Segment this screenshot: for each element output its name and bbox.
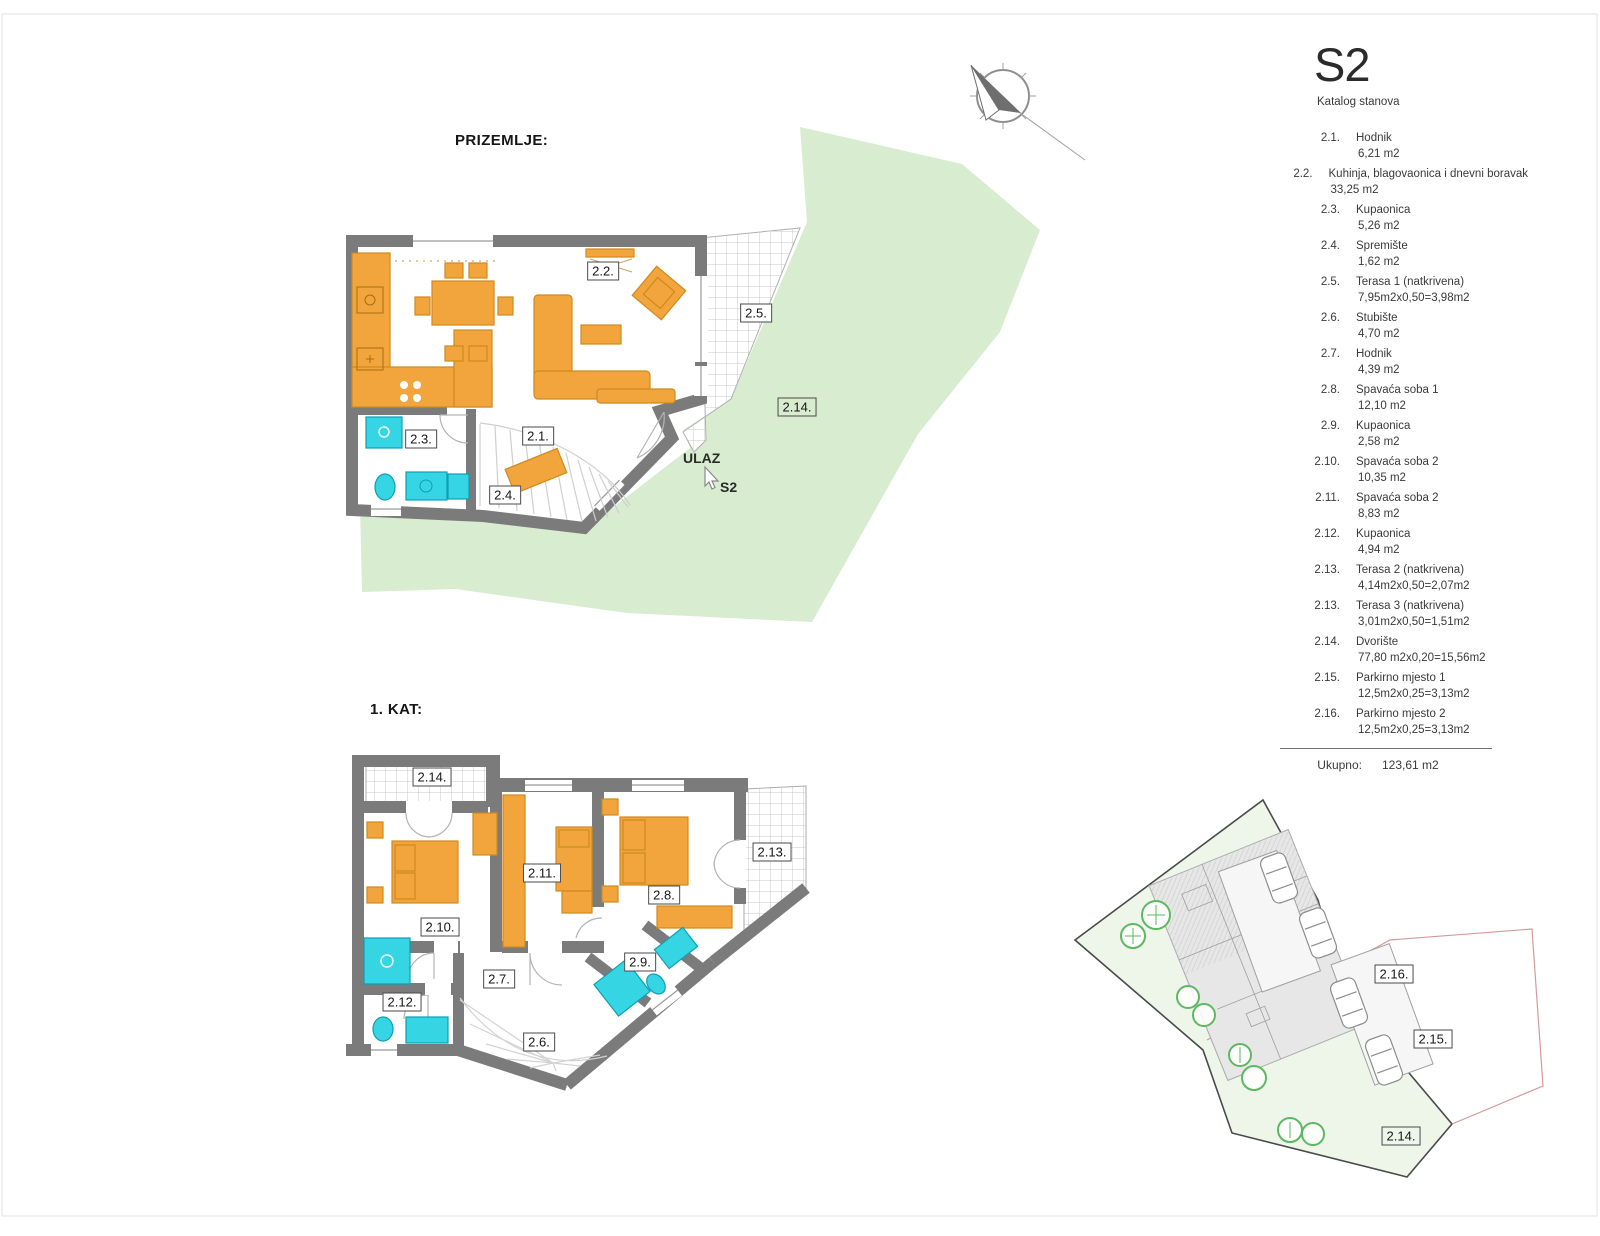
door-gap-2-12 — [425, 983, 451, 995]
legend-item-name: Terasa 1 (natkrivena) — [1356, 274, 1528, 290]
room-label-2-5: 2.5. — [740, 304, 772, 323]
shower — [366, 417, 402, 448]
legend-footer: Ukupno: 123,61 m2 — [1276, 748, 1528, 772]
sofa-ottoman — [597, 389, 675, 403]
wall-213-stub-top — [734, 790, 746, 840]
ground-floor-plan — [352, 127, 1040, 622]
nightstand — [602, 799, 618, 815]
first-floor-title: 1. KAT: — [370, 701, 423, 718]
legend-items: 2.1.Hodnik6,21 m22.2.Kuhinja, blagovaoni… — [1276, 130, 1528, 772]
legend-item-number: 2.13. — [1276, 562, 1356, 594]
legend-item-area: 4,70 m2 — [1356, 326, 1528, 342]
legend-item: 2.10.Spavaća soba 210,35 m2 — [1276, 454, 1528, 486]
legend-item-body: Spavaća soba 112,10 m2 — [1356, 382, 1528, 414]
total-value: 123,61 m2 — [1382, 758, 1439, 772]
legend-item: 2.5.Terasa 1 (natkrivena)7,95m2x0,50=3,9… — [1276, 274, 1528, 306]
north-arrow-icon — [970, 63, 1085, 160]
site-label-2-16: 2.16. — [1375, 965, 1414, 984]
legend-item-area: 12,5m2x0,25=3,13m2 — [1356, 722, 1528, 738]
legend-item: 2.16.Parkirno mjesto 212,5m2x0,25=3,13m2 — [1276, 706, 1528, 738]
pillow — [395, 845, 415, 871]
legend-item-area: 8,83 m2 — [1356, 506, 1528, 522]
legend-item-number: 2.12. — [1276, 526, 1356, 558]
legend-item-area: 4,14m2x0,50=2,07m2 — [1356, 578, 1528, 594]
legend-item: 2.15.Parkirno mjesto 112,5m2x0,25=3,13m2 — [1276, 670, 1528, 702]
legend-item-area: 7,95m2x0,50=3,98m2 — [1356, 290, 1528, 306]
legend-item: 2.4.Spremište1,62 m2 — [1276, 238, 1528, 270]
legend-item-body: Terasa 2 (natkrivena)4,14m2x0,50=2,07m2 — [1356, 562, 1528, 594]
room-label-2-13: 2.13. — [753, 843, 792, 862]
nightstand — [367, 887, 383, 903]
room-label-2-4: 2.4. — [489, 486, 521, 505]
legend-item-number: 2.3. — [1276, 202, 1356, 234]
legend-item: 2.7.Hodnik4,39 m2 — [1276, 346, 1528, 378]
dresser-2-8 — [657, 906, 732, 928]
legend-item-area: 6,21 m2 — [1356, 146, 1528, 162]
legend-item-name: Hodnik — [1356, 130, 1528, 146]
wardrobe-2-10 — [473, 813, 497, 855]
room-label-2-14-ff: 2.14. — [413, 768, 452, 787]
room-label-2-9: 2.9. — [624, 953, 656, 972]
legend-item: 2.13.Terasa 2 (natkrivena)4,14m2x0,50=2,… — [1276, 562, 1528, 594]
legend-item-body: Kupaonica5,26 m2 — [1356, 202, 1528, 234]
legend-separator — [1280, 748, 1492, 749]
chair — [469, 346, 487, 361]
wall-terrace-bottom-l — [364, 801, 406, 813]
chair — [415, 297, 430, 315]
wall-terrace-top — [352, 755, 498, 767]
window-top-1 — [525, 780, 572, 791]
legend-item-area: 1,62 m2 — [1356, 254, 1528, 270]
legend-item-area: 4,39 m2 — [1356, 362, 1528, 378]
legend-item-number: 2.1. — [1276, 130, 1356, 162]
chair — [445, 346, 463, 361]
legend-item-number: 2.13. — [1276, 598, 1356, 630]
legend-item: 2.14.Dvorište77,80 m2x0,20=15,56m2 — [1276, 634, 1528, 666]
room-label-2-12: 2.12. — [383, 993, 422, 1012]
legend-item-area: 3,01m2x0,50=1,51m2 — [1356, 614, 1528, 630]
legend-item-body: Parkirno mjesto 112,5m2x0,25=3,13m2 — [1356, 670, 1528, 702]
legend-item-name: Terasa 3 (natkrivena) — [1356, 598, 1528, 614]
window-bottom — [371, 1044, 397, 1056]
legend-item-name: Kupaonica — [1356, 526, 1528, 542]
legend-item-body: Spavaća soba 28,83 m2 — [1356, 490, 1528, 522]
legend-item-name: Spremište — [1356, 238, 1528, 254]
legend-item-area: 5,26 m2 — [1356, 218, 1528, 234]
legend-item: 2.8.Spavaća soba 112,10 m2 — [1276, 382, 1528, 414]
legend-item-name: Terasa 2 (natkrivena) — [1356, 562, 1528, 578]
legend-item-body: Hodnik4,39 m2 — [1356, 346, 1528, 378]
legend-item-name: Kupaonica — [1356, 418, 1528, 434]
total-label: Ukupno: — [1276, 758, 1372, 772]
legend-item-number: 2.9. — [1276, 418, 1356, 450]
kitchen-peninsula — [454, 330, 492, 407]
legend-item-body: Kupaonica4,94 m2 — [1356, 526, 1528, 558]
window-top — [413, 234, 493, 248]
unit-title: S2 — [1314, 42, 1370, 88]
room-label-2-1: 2.1. — [522, 427, 554, 446]
washbasin — [448, 474, 469, 499]
tree-icon — [1242, 1066, 1266, 1090]
legend-item-number: 2.5. — [1276, 274, 1356, 306]
chair — [498, 297, 513, 315]
room-label-2-8: 2.8. — [648, 886, 680, 905]
legend-item-body: Terasa 3 (natkrivena)3,01m2x0,50=1,51m2 — [1356, 598, 1528, 630]
legend-item-body: Dvorište77,80 m2x0,20=15,56m2 — [1356, 634, 1528, 666]
entrance-unit-label: S2 — [720, 479, 737, 495]
legend-item-name: Spavaća soba 2 — [1356, 454, 1528, 470]
catalog-subtitle: Katalog stanova — [1317, 96, 1399, 108]
pillow — [623, 853, 645, 883]
door-gap-2-11 — [528, 941, 562, 953]
legend-item-name: Dvorište — [1356, 634, 1528, 650]
legend-item: 2.12.Kupaonica4,94 m2 — [1276, 526, 1528, 558]
window-top-2 — [632, 780, 684, 791]
terrace-door — [694, 366, 708, 396]
toilet — [375, 474, 395, 500]
pillow — [559, 830, 589, 847]
legend-item-area: 77,80 m2x0,20=15,56m2 — [1356, 650, 1528, 666]
door-gap-2-10 — [434, 941, 458, 953]
first-floor-plan — [346, 755, 806, 1085]
legend-item-area: 12,10 m2 — [1356, 398, 1528, 414]
legend-item-area: 12,5m2x0,25=3,13m2 — [1356, 686, 1528, 702]
toilet-2-12 — [373, 1017, 393, 1041]
room-label-2-2: 2.2. — [587, 262, 619, 281]
legend-item-area: 4,94 m2 — [1356, 542, 1528, 558]
legend-item-name: Spavaća soba 2 — [1356, 490, 1528, 506]
legend-item-name: Kupaonica — [1356, 202, 1528, 218]
legend-item: 2.3.Kupaonica5,26 m2 — [1276, 202, 1528, 234]
legend-item-body: Parkirno mjesto 212,5m2x0,25=3,13m2 — [1356, 706, 1528, 738]
site-label-2-15: 2.15. — [1414, 1030, 1453, 1049]
plan-sheet: { "ground_floor": { "title": "PRIZEMLJE:… — [0, 0, 1600, 1236]
vanity-2-12 — [406, 1017, 448, 1043]
legend-item-number: 2.16. — [1276, 706, 1356, 738]
dining-table — [432, 281, 494, 325]
site-label-2-14: 2.14. — [1382, 1127, 1421, 1146]
tv-shelf — [586, 249, 634, 257]
pillow — [395, 873, 415, 899]
legend-item-area: 2,58 m2 — [1356, 434, 1528, 450]
room-label-2-11: 2.11. — [523, 864, 561, 883]
legend-item-name: Spavaća soba 1 — [1356, 382, 1528, 398]
tree-icon — [1177, 986, 1199, 1008]
wall-2-12-right — [453, 953, 464, 1044]
coffee-table — [581, 325, 621, 344]
legend-item-number: 2.8. — [1276, 382, 1356, 414]
room-label-2-6: 2.6. — [523, 1033, 555, 1052]
legend-item: 2.13.Terasa 3 (natkrivena)3,01m2x0,50=1,… — [1276, 598, 1528, 630]
nightstand — [602, 886, 618, 902]
legend-item: 2.11.Spavaća soba 28,83 m2 — [1276, 490, 1528, 522]
site-plan — [1075, 800, 1543, 1177]
room-label-2-3: 2.3. — [405, 430, 437, 449]
legend-item-name: Kuhinja, blagovaonica i dnevni boravak — [1329, 166, 1528, 182]
legend-item-body: Kuhinja, blagovaonica i dnevni boravak33… — [1329, 166, 1528, 198]
legend-item-body: Hodnik6,21 m2 — [1356, 130, 1528, 162]
chair — [469, 263, 487, 278]
room-label-2-14-gf: 2.14. — [778, 398, 817, 417]
room-label-2-7: 2.7. — [483, 970, 515, 989]
tree-icon — [1302, 1123, 1324, 1145]
window-right — [694, 276, 708, 362]
room-label-2-10: 2.10. — [421, 918, 460, 937]
legend-item-area: 10,35 m2 — [1356, 470, 1528, 486]
legend-item-number: 2.7. — [1276, 346, 1356, 378]
legend-item-name: Parkirno mjesto 2 — [1356, 706, 1528, 722]
tree-icon — [1193, 1004, 1215, 1026]
entrance-label: ULAZ — [683, 450, 720, 466]
legend-item-number: 2.10. — [1276, 454, 1356, 486]
shower-2-12 — [364, 938, 410, 984]
legend-item-body: Terasa 1 (natkrivena)7,95m2x0,50=3,98m2 — [1356, 274, 1528, 306]
legend-item-body: Stubište4,70 m2 — [1356, 310, 1528, 342]
legend-item-name: Stubište — [1356, 310, 1528, 326]
legend-item-number: 2.6. — [1276, 310, 1356, 342]
legend-item: 2.2.Kuhinja, blagovaonica i dnevni borav… — [1276, 166, 1528, 198]
ground-floor-title: PRIZEMLJE: — [455, 132, 548, 149]
legend-item-name: Hodnik — [1356, 346, 1528, 362]
legend-item: 2.6.Stubište4,70 m2 — [1276, 310, 1528, 342]
legend-item-number: 2.4. — [1276, 238, 1356, 270]
service-door — [371, 503, 401, 516]
legend-item-number: 2.11. — [1276, 490, 1356, 522]
washer — [406, 472, 447, 500]
legend-item-body: Spremište1,62 m2 — [1356, 238, 1528, 270]
legend-total-row: Ukupno: 123,61 m2 — [1276, 758, 1528, 772]
legend-item: 2.9.Kupaonica2,58 m2 — [1276, 418, 1528, 450]
legend-item: 2.1.Hodnik6,21 m2 — [1276, 130, 1528, 162]
legend-item-area: 33,25 m2 — [1329, 182, 1528, 198]
legend-item-body: Spavaća soba 210,35 m2 — [1356, 454, 1528, 486]
nightstand — [367, 822, 383, 838]
wall-bottom — [346, 1044, 464, 1056]
legend-item-number: 2.15. — [1276, 670, 1356, 702]
legend-item-number: 2.2. — [1276, 166, 1329, 198]
legend-item-body: Kupaonica2,58 m2 — [1356, 418, 1528, 450]
wall-left — [352, 755, 364, 1055]
legend-item-name: Parkirno mjesto 1 — [1356, 670, 1528, 686]
chair — [445, 263, 463, 278]
wall-213-stub-bottom — [734, 888, 746, 904]
wall-terrace-bottom-r — [452, 801, 488, 813]
wardrobe-2-11 — [503, 795, 525, 947]
desk-2-11 — [562, 891, 592, 913]
legend-item-number: 2.14. — [1276, 634, 1356, 666]
pillow — [623, 820, 645, 850]
